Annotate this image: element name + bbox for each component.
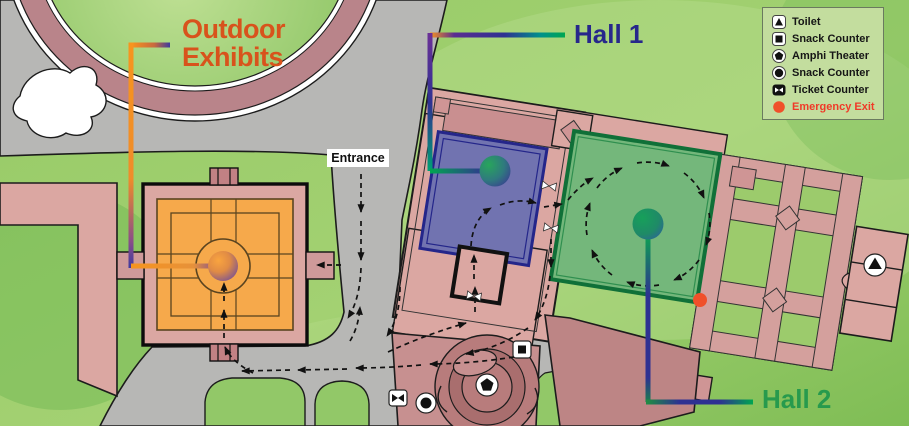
hall1-ball bbox=[480, 156, 511, 187]
snack-counter-square-icon bbox=[772, 32, 786, 46]
south-gate bbox=[210, 344, 238, 361]
emergency-exit-dot-icon bbox=[772, 100, 786, 114]
ticket-counter-marker bbox=[389, 390, 407, 406]
map-legend: Toilet Snack Counter Amphi Theater Snack… bbox=[762, 7, 884, 120]
outdoor-exhibits-label-line2: Exhibits bbox=[182, 44, 285, 72]
hall1-floor bbox=[420, 132, 547, 266]
north-gate bbox=[210, 168, 238, 185]
legend-row-snack-counter-2: Snack Counter bbox=[772, 64, 883, 81]
museum-map: Outdoor Exhibits Hall 1 Hall 2 Entrance … bbox=[0, 0, 909, 426]
legend-row-emergency-exit: Emergency Exit bbox=[772, 98, 883, 115]
legend-row-toilet: Toilet bbox=[772, 13, 883, 30]
snack-counter-marker bbox=[513, 341, 531, 358]
legend-row-amphi-theater: Amphi Theater bbox=[772, 47, 883, 64]
outdoor-exhibits-label-line1: Outdoor bbox=[182, 16, 285, 44]
snack-counter-marker-2 bbox=[416, 393, 436, 413]
emergency-exit-marker bbox=[693, 293, 707, 307]
road-island bbox=[205, 378, 305, 426]
outdoor-exhibits-ball bbox=[208, 251, 238, 281]
outdoor-exhibits-label: Outdoor Exhibits bbox=[182, 16, 285, 71]
legend-row-snack-counter-1: Snack Counter bbox=[772, 30, 883, 47]
toilet-triangle-icon bbox=[772, 15, 786, 29]
hall2-ball bbox=[633, 209, 664, 240]
hall2-label: Hall 2 bbox=[762, 384, 831, 415]
snack-counter-circle-icon bbox=[772, 66, 786, 80]
amphi-theater-pentagon-icon bbox=[772, 49, 786, 63]
ticket-counter-bowtie-icon bbox=[772, 83, 786, 97]
toilet-marker bbox=[864, 254, 886, 276]
amphi-theater-marker bbox=[476, 374, 498, 396]
legend-row-ticket-counter: Ticket Counter bbox=[772, 81, 883, 98]
entrance-label: Entrance bbox=[327, 149, 389, 167]
hall1-label: Hall 1 bbox=[574, 19, 643, 50]
road-island bbox=[315, 381, 369, 426]
